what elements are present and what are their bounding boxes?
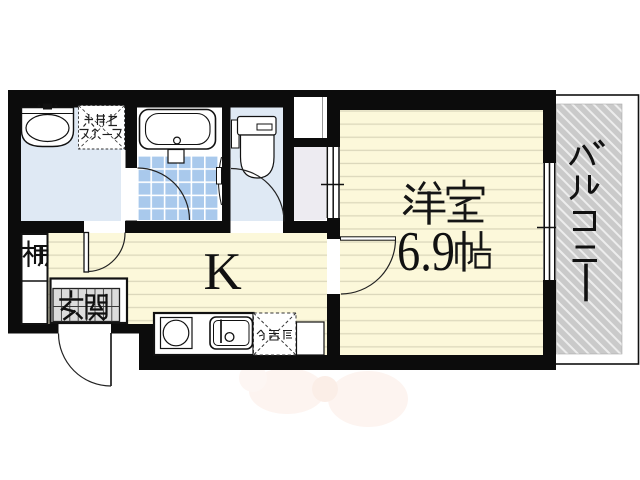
- svg-text:K: K: [204, 243, 242, 301]
- svg-text:6.9: 6.9: [397, 221, 455, 283]
